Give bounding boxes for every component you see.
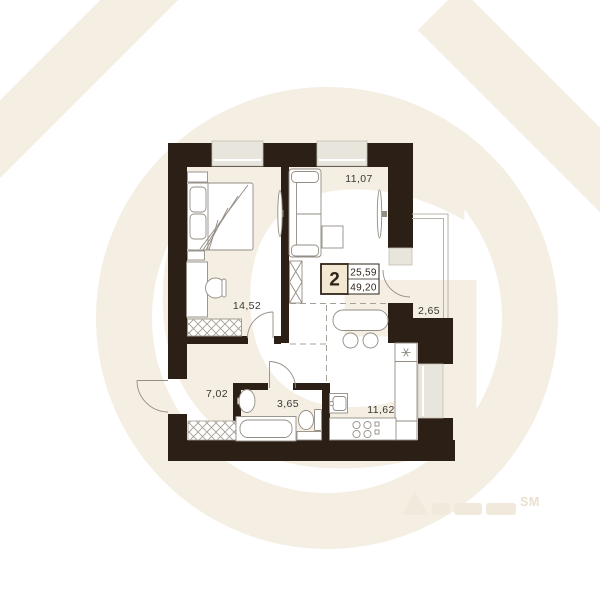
bathtub: [236, 417, 296, 442]
bedroom-door: [248, 312, 274, 338]
loggia-glazing: [412, 214, 448, 318]
wall-bottom: [168, 440, 455, 461]
bathroom-door: [270, 362, 296, 389]
toilet: [299, 410, 322, 431]
nightstand-top: [188, 172, 208, 182]
dining-chair: [363, 333, 378, 348]
wall-top: [168, 143, 413, 167]
desk: [187, 262, 208, 317]
pillow: [190, 214, 206, 239]
brand-tm-text: SM: [520, 495, 540, 509]
label-kitchen-area: 11,62: [367, 404, 395, 416]
wall-bath-top-left: [233, 383, 268, 390]
brand-logo-icon: [402, 491, 428, 515]
living-tv: [377, 190, 387, 238]
window-living: [317, 141, 367, 166]
wall-right-lower: [388, 303, 413, 343]
badge-total-area: 49,20: [350, 283, 377, 294]
window-kitchen: [418, 364, 443, 418]
wall-bedroom-bottom-right: [274, 336, 281, 344]
loggia-door: [383, 270, 410, 297]
wall-right-upper: [388, 167, 413, 248]
kitchen-counter-bottom: [330, 418, 397, 440]
brand-watermark: SM: [400, 487, 550, 523]
shaft-block: [389, 248, 412, 265]
window-bedroom: [212, 141, 263, 166]
hall-furniture: [188, 421, 236, 440]
floorplan-canvas: G: [0, 0, 600, 600]
entrance-door: [137, 381, 168, 413]
dining-table-group: [333, 310, 388, 348]
nightstand-bottom: [188, 251, 205, 260]
washing-machine: [297, 432, 322, 441]
bedroom-wardrobe: [188, 319, 242, 336]
wall-kitchen-right-upper: [418, 343, 453, 364]
sofa: [289, 169, 321, 257]
wall-bedroom-bottom-left: [187, 336, 248, 344]
bed: [188, 183, 254, 250]
badge-rooms-count: 2: [329, 270, 340, 291]
info-badge: 2 25,59 49,20: [321, 264, 379, 294]
badge-living-area: 25,59: [350, 268, 377, 279]
brand-text-blur: [486, 503, 516, 515]
wall-bath-right: [322, 390, 330, 440]
kitchen-sink-unit: [330, 394, 348, 414]
wall-kitchen-right-lower: [418, 418, 453, 440]
kitchen-counter-right: [395, 343, 417, 440]
label-loggia-area: 2,65: [418, 305, 440, 317]
living-closet: [290, 261, 303, 303]
dining-chair: [343, 333, 358, 348]
pillow: [190, 187, 206, 212]
wall-left-upper: [168, 167, 187, 379]
wall-bedroom-living-divider: [281, 167, 289, 343]
label-living-area: 11,07: [345, 173, 373, 185]
brand-text-blur: [454, 503, 482, 515]
dining-table: [333, 310, 388, 331]
wall-bath-top-right: [293, 383, 330, 390]
hall-wardrobe: [188, 421, 236, 440]
wall-loggia-bottom: [412, 318, 453, 343]
wall-left-lower: [168, 414, 187, 440]
brand-text-blur: [432, 503, 450, 515]
label-bath-area: 3,65: [277, 398, 299, 410]
desk-chair-back: [222, 279, 226, 297]
label-bedroom-area: 14,52: [233, 300, 261, 312]
coffee-table: [322, 226, 343, 248]
label-hall-area: 7,02: [206, 388, 228, 400]
